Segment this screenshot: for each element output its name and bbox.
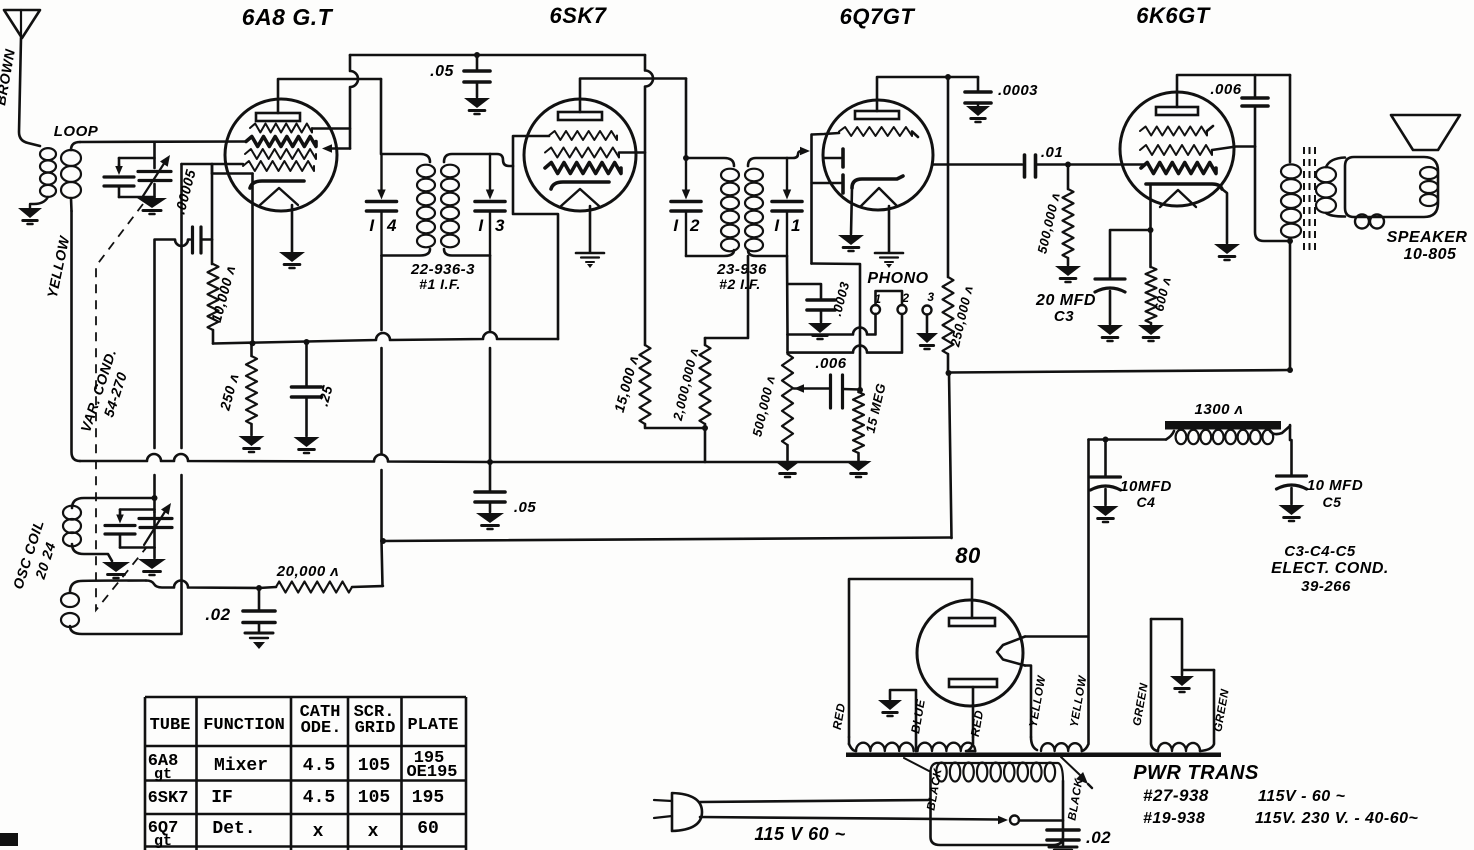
- svg-text:105: 105: [358, 788, 390, 808]
- svg-text:6SK7: 6SK7: [549, 3, 607, 28]
- svg-text:x: x: [313, 822, 324, 842]
- svg-text:FUNCTION: FUNCTION: [203, 716, 285, 735]
- svg-text:10-805: 10-805: [1404, 246, 1457, 263]
- svg-text:4: 4: [386, 216, 397, 235]
- svg-text:4.5: 4.5: [303, 756, 335, 776]
- svg-text:4.5: 4.5: [303, 788, 335, 808]
- svg-text:80: 80: [955, 543, 981, 568]
- svg-text:.006: .006: [1210, 81, 1241, 98]
- svg-text:TUBE: TUBE: [150, 716, 191, 735]
- svg-text:C4: C4: [1137, 494, 1156, 510]
- svg-text:6K6GT: 6K6GT: [1136, 3, 1210, 28]
- svg-text:C3: C3: [1054, 308, 1074, 325]
- svg-text:115 V 60 ~: 115 V 60 ~: [754, 824, 845, 844]
- svg-text:39-266: 39-266: [1301, 578, 1351, 595]
- svg-text:1: 1: [791, 216, 801, 235]
- svg-text:.02: .02: [205, 605, 230, 624]
- svg-text:gt: gt: [154, 766, 172, 783]
- svg-text:105: 105: [358, 756, 390, 776]
- svg-text:.006: .006: [815, 355, 846, 372]
- svg-text:#1 I.F.: #1 I.F.: [419, 276, 461, 292]
- svg-text:3: 3: [495, 216, 505, 235]
- svg-text:Mixer: Mixer: [214, 756, 268, 776]
- svg-text:115V - 60 ~: 115V - 60 ~: [1258, 788, 1346, 805]
- svg-text:6SK7: 6SK7: [148, 789, 189, 808]
- svg-text:3: 3: [927, 290, 934, 304]
- svg-text:x: x: [368, 822, 379, 842]
- svg-text:.05: .05: [430, 63, 454, 80]
- svg-text:20,000 ʌ: 20,000 ʌ: [276, 563, 339, 580]
- svg-text:195: 195: [412, 788, 444, 808]
- svg-text:115V. 230 V. - 40-60~: 115V. 230 V. - 40-60~: [1255, 810, 1419, 827]
- svg-text:LOOP: LOOP: [54, 123, 99, 140]
- svg-text:20 MFD: 20 MFD: [1035, 292, 1096, 309]
- svg-text:IF: IF: [211, 788, 233, 808]
- svg-text:60: 60: [417, 819, 439, 839]
- svg-text:#27-938: #27-938: [1143, 786, 1209, 805]
- svg-text:.01: .01: [1041, 144, 1063, 161]
- svg-text:#2 I.F.: #2 I.F.: [719, 276, 761, 292]
- svg-text:#19-938: #19-938: [1143, 810, 1205, 827]
- svg-text:I: I: [369, 216, 375, 235]
- svg-text:PHONO: PHONO: [867, 270, 928, 287]
- svg-text:I: I: [478, 216, 484, 235]
- svg-text:SPEAKER: SPEAKER: [1387, 229, 1468, 246]
- svg-text:2: 2: [689, 216, 700, 235]
- svg-text:I: I: [774, 216, 780, 235]
- svg-text:10MFD: 10MFD: [1120, 478, 1172, 495]
- svg-text:OE195: OE195: [406, 763, 457, 782]
- svg-text:Det.: Det.: [212, 819, 255, 839]
- svg-text:C3-C4-C5: C3-C4-C5: [1284, 543, 1356, 560]
- svg-text:PLATE: PLATE: [407, 716, 458, 735]
- svg-text:.05: .05: [514, 499, 537, 516]
- svg-text:6Q7GT: 6Q7GT: [840, 4, 916, 29]
- svg-text:GRID: GRID: [355, 719, 396, 738]
- svg-text:1300 ʌ: 1300 ʌ: [1195, 401, 1244, 418]
- svg-text:I: I: [673, 216, 679, 235]
- svg-text:PWR TRANS: PWR TRANS: [1133, 762, 1259, 784]
- svg-text:C5: C5: [1323, 494, 1342, 510]
- svg-text:.02: .02: [1086, 828, 1111, 847]
- svg-text:6A8 G.T: 6A8 G.T: [242, 4, 334, 30]
- svg-text:gt: gt: [154, 833, 172, 850]
- svg-text:ELECT. COND.: ELECT. COND.: [1271, 560, 1389, 577]
- svg-text:.0003: .0003: [998, 82, 1038, 99]
- svg-text:10 MFD: 10 MFD: [1307, 477, 1363, 494]
- svg-text:ODE.: ODE.: [301, 719, 342, 738]
